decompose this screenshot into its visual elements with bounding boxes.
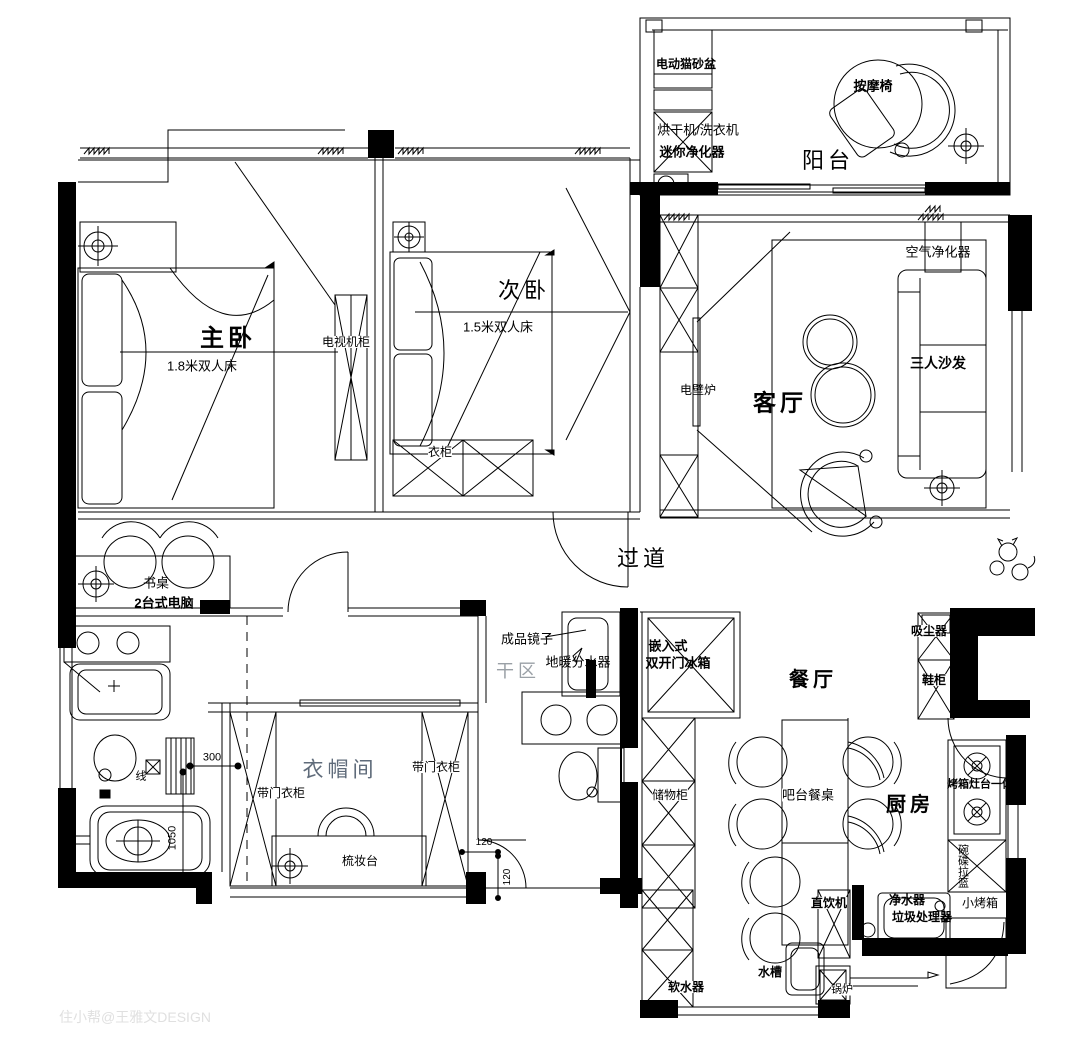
item-label-sofa: 三人沙发 <box>910 356 966 370</box>
item-label-fridge-line1: 嵌入式 <box>648 640 687 653</box>
item-label-vacuum: 吸尘器 <box>911 625 947 637</box>
item-label-garbage-disposal: 垃圾处理器 <box>892 911 952 923</box>
item-label-air-purifier: 空气净化器 <box>905 246 970 259</box>
room-label-second: 次卧 <box>498 280 550 302</box>
item-label-dish-basket: 碗碟拉篮 <box>957 844 968 888</box>
dimension-lines <box>180 763 501 901</box>
item-label-wire: 线 <box>136 772 147 783</box>
walls-solid <box>58 130 1035 1018</box>
dim-120a: 120 <box>476 838 493 848</box>
item-label-mirror: 成品镜子 <box>501 633 553 646</box>
item-label-storage-cabinet: 储物柜 <box>652 789 688 801</box>
dry-area-bath2 <box>478 612 636 888</box>
room-label-dry-area: 干区 <box>496 662 540 680</box>
item-label-small-oven: 小烤箱 <box>962 897 998 909</box>
item-label-massage-chair: 按摩椅 <box>853 80 892 93</box>
second-bedroom-furniture <box>390 188 630 587</box>
room-label-kitchen: 厨房 <box>886 795 934 815</box>
dim-120b: 120 <box>503 869 513 886</box>
item-label-mini-purifier: 迷你净化器 <box>659 146 724 159</box>
item-label-dressing-table: 梳妆台 <box>342 855 378 867</box>
item-label-shoe-cabinet: 鞋柜 <box>922 674 946 686</box>
room-label-corridor: 过道 <box>617 548 669 570</box>
room-label-master: 主卧 <box>200 327 256 351</box>
item-label-bar-table: 吧台餐桌 <box>782 789 834 802</box>
item-label-tv-cabinet: 电视机柜 <box>322 336 370 348</box>
item-label-cat-litter-box: 电动猫砂盆 <box>656 58 716 70</box>
room-label-dining: 餐厅 <box>789 670 837 690</box>
item-label-wardrobe-door-right: 带门衣柜 <box>412 761 460 773</box>
room-label-balcony: 阳台 <box>802 150 854 172</box>
item-label-boiler: 锅炉 <box>831 985 853 996</box>
item-label-wardrobe-door-left: 带门衣柜 <box>257 787 305 799</box>
dim-300: 300 <box>203 753 221 764</box>
fireplace-column <box>660 215 812 532</box>
fridge-and-storage <box>642 612 740 1007</box>
item-label-bed15: 1.5米双人床 <box>463 321 533 334</box>
floor-plan-page: { "watermark": "住小帮@王雅文DESIGN", "colors"… <box>0 0 1080 1052</box>
watermark-text: 住小帮@王雅文DESIGN <box>59 1010 211 1024</box>
dining-furniture <box>729 720 938 1004</box>
item-label-desk: 书桌 <box>143 577 169 590</box>
item-label-computers: 2台式电脑 <box>134 597 193 610</box>
room-label-cloakroom: 衣帽间 <box>303 760 378 781</box>
item-label-sink: 水槽 <box>758 966 782 978</box>
living-room-furniture <box>772 222 986 536</box>
item-label-water-purifier: 净水器 <box>889 894 925 906</box>
item-label-dryer-washer: 烘干机/洗衣机 <box>657 124 739 137</box>
item-label-bed18: 1.8米双人床 <box>167 360 237 373</box>
cat-sketch <box>990 538 1035 580</box>
item-label-manifold: 地暖分水器 <box>545 656 610 669</box>
item-label-fridge-line2: 双开门冰箱 <box>645 657 710 670</box>
item-label-drinking-machine: 直饮机 <box>811 897 847 909</box>
room-label-living: 客厅 <box>753 392 807 415</box>
item-label-water-softener: 软水器 <box>668 981 704 993</box>
item-label-fireplace: 电壁炉 <box>680 384 716 396</box>
dim-1050: 1050 <box>168 826 179 850</box>
item-label-wardrobe: 衣柜 <box>428 446 452 458</box>
item-label-oven-stove: 烤箱灶台一体 <box>947 780 1013 791</box>
